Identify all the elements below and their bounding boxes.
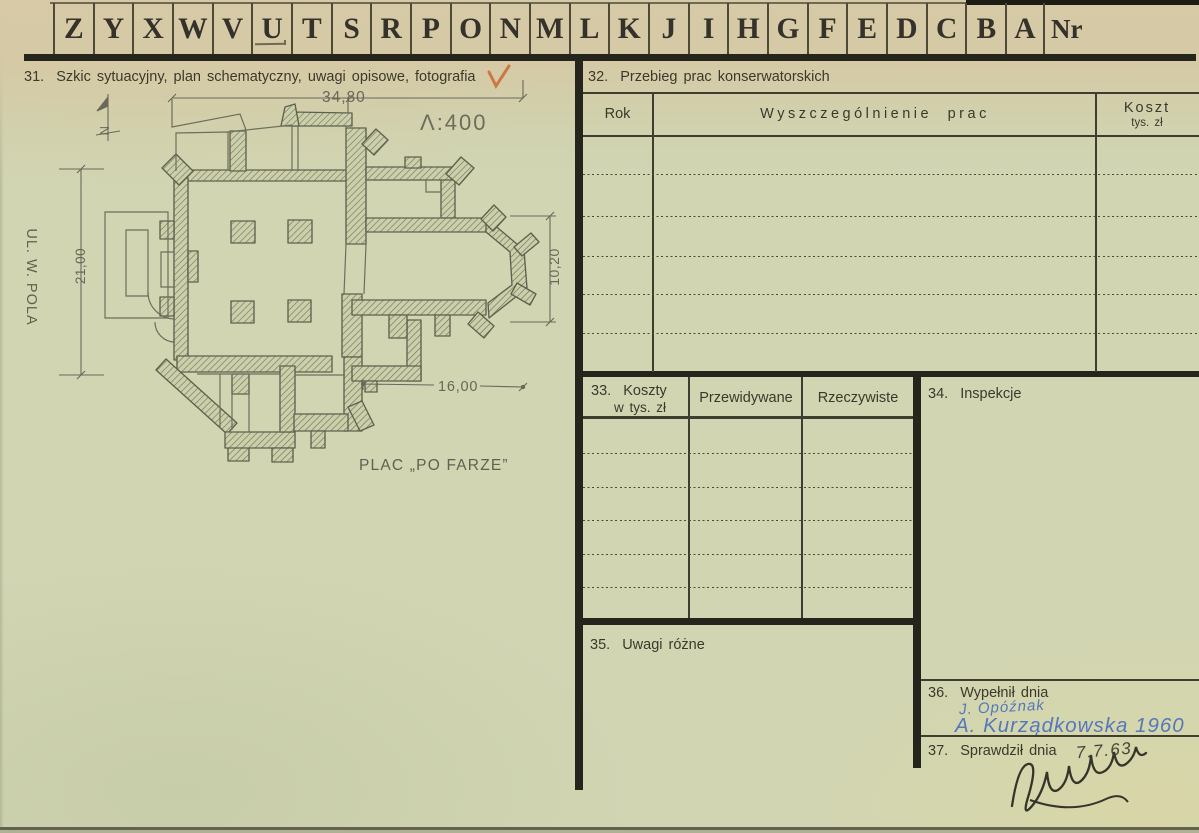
svg-text:16,00: 16,00 [438, 379, 478, 395]
svg-text:UL. W. POLA: UL. W. POLA [23, 228, 39, 325]
svg-text:10,20: 10,20 [546, 248, 562, 286]
svg-text:34,80: 34,80 [322, 89, 366, 106]
svg-text:N: N [97, 126, 112, 135]
svg-text:Λ:400: Λ:400 [420, 110, 488, 135]
svg-text:21,00: 21,00 [73, 248, 88, 284]
svg-text:PLAC „PO FARZE”: PLAC „PO FARZE” [359, 457, 509, 474]
